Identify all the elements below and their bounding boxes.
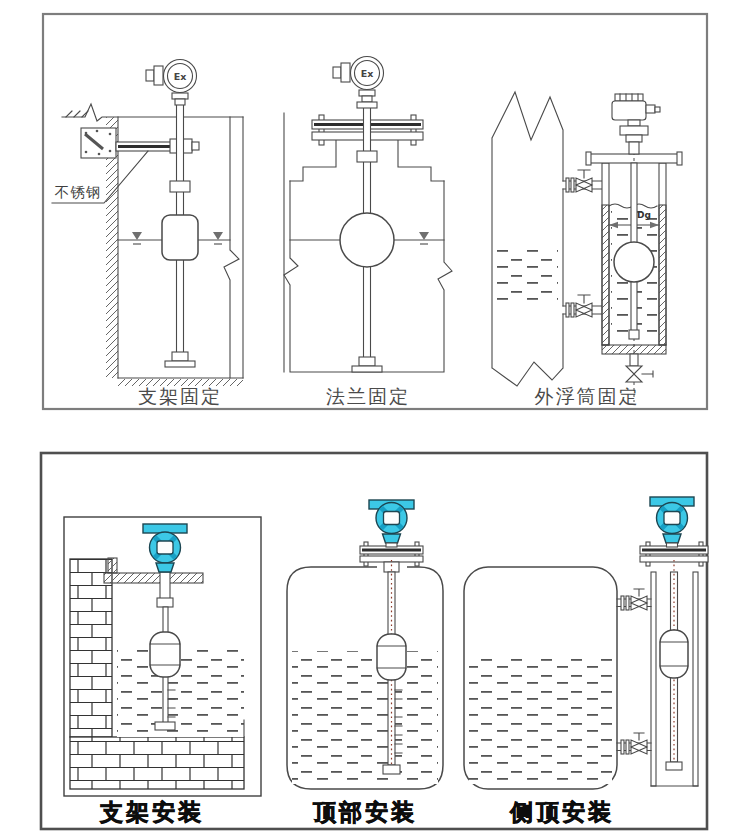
stem-coupling — [170, 181, 190, 192]
caption-bracket-fixing: 支架固定 — [138, 385, 222, 407]
float — [660, 630, 688, 678]
stem-end-weight — [155, 722, 175, 730]
caption-flange-fixing: 法兰固定 — [326, 385, 410, 407]
ex-marking: Ex — [174, 71, 187, 82]
float — [150, 632, 180, 677]
stainless-steel-label: 不锈钢 — [55, 184, 102, 200]
stem-coupling — [157, 598, 173, 607]
figure-canvas: Ex 不锈钢 支架固定 — [0, 0, 750, 840]
bottom-panel: 支架安装 — [41, 453, 708, 829]
bracket-post — [108, 558, 117, 573]
float — [614, 242, 654, 282]
bracket-beam — [104, 573, 203, 583]
water — [292, 651, 438, 784]
brick-wall — [70, 559, 112, 737]
float — [377, 634, 406, 680]
caption-external-chamber-fixing: 外浮筒固定 — [535, 385, 640, 407]
brick-floor — [70, 737, 244, 789]
tank-water — [496, 248, 558, 304]
float — [162, 215, 198, 260]
stem-end-weight — [383, 765, 400, 774]
stem-end-weight — [666, 762, 682, 770]
float-level-transmitter-installation-figure: Ex 不锈钢 支架固定 — [0, 0, 750, 840]
caption-side-top-installation: 侧顶安装 — [509, 799, 614, 825]
ex-marking: Ex — [361, 68, 374, 79]
stem-coupling — [357, 151, 377, 162]
caption-bracket-installation: 支架安装 — [99, 799, 204, 825]
stem-coupling — [629, 330, 639, 339]
top-panel: Ex 不锈钢 支架固定 — [43, 14, 707, 409]
dg-label: Dg — [637, 210, 651, 220]
caption-top-installation: 顶部安装 — [312, 799, 417, 825]
float — [340, 213, 394, 267]
water — [469, 653, 612, 784]
